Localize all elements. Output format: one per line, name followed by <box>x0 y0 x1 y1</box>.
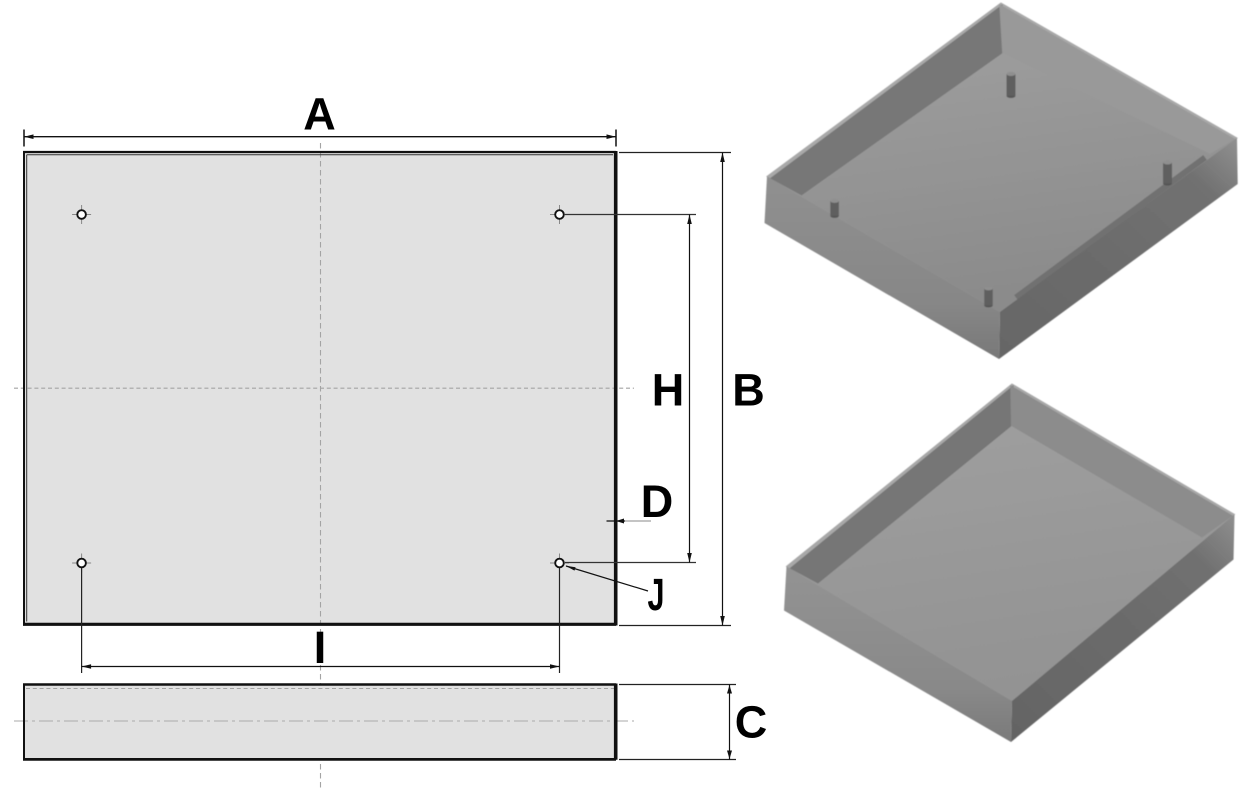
svg-text:A: A <box>303 89 336 140</box>
svg-text:J: J <box>648 569 665 620</box>
svg-text:C: C <box>735 697 768 748</box>
svg-text:D: D <box>641 476 674 527</box>
svg-text:I: I <box>314 622 327 673</box>
svg-text:H: H <box>652 365 685 416</box>
svg-text:B: B <box>732 365 765 416</box>
